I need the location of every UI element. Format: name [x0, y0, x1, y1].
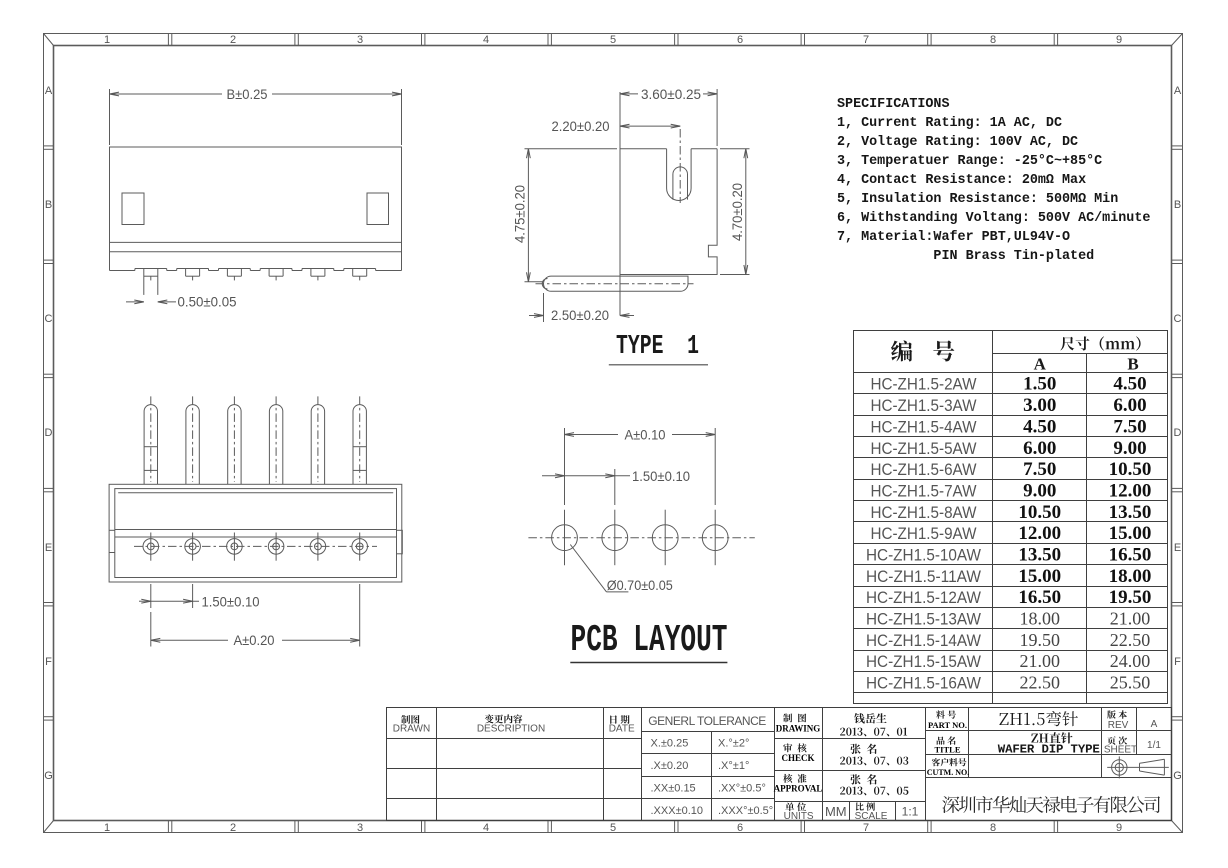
svg-text:25.50: 25.50 — [1110, 673, 1151, 693]
svg-text:GENERL TOLERANCE: GENERL TOLERANCE — [648, 714, 766, 728]
svg-text:PIN Brass Tin-plated: PIN Brass Tin-plated — [837, 249, 1094, 264]
svg-text:8: 8 — [990, 822, 996, 834]
svg-text:B: B — [1127, 355, 1138, 374]
svg-text:G: G — [1173, 770, 1182, 782]
svg-text:HC-ZH1.5-2AW: HC-ZH1.5-2AW — [871, 375, 977, 394]
svg-text:PART NO.: PART NO. — [928, 720, 967, 730]
svg-text:1: 1 — [104, 822, 110, 834]
svg-text:12.00: 12.00 — [1109, 480, 1152, 501]
svg-text:A: A — [1174, 85, 1182, 97]
svg-text:19.50: 19.50 — [1020, 630, 1061, 650]
svg-text:2.50±0.20: 2.50±0.20 — [551, 307, 609, 323]
svg-text:SCALE: SCALE — [855, 811, 888, 822]
svg-text:HC-ZH1.5-4AW: HC-ZH1.5-4AW — [871, 417, 977, 436]
svg-text:7.50: 7.50 — [1113, 416, 1146, 437]
svg-text:2: 2 — [230, 822, 236, 834]
svg-text:PCB LAYOUT: PCB LAYOUT — [571, 619, 728, 662]
svg-text:2: 2 — [230, 34, 236, 46]
svg-text:B±0.25: B±0.25 — [227, 86, 268, 102]
svg-text:1.50: 1.50 — [1023, 374, 1056, 395]
svg-text:A±0.10: A±0.10 — [625, 426, 666, 442]
svg-text:3.60±0.25: 3.60±0.25 — [641, 86, 701, 102]
svg-text:10.50: 10.50 — [1109, 459, 1152, 480]
svg-text:Ø0.70±0.05: Ø0.70±0.05 — [607, 577, 673, 593]
svg-text:9: 9 — [1116, 822, 1122, 834]
svg-text:4: 4 — [483, 34, 489, 46]
svg-text:15.00: 15.00 — [1018, 566, 1061, 587]
svg-text:7: 7 — [863, 34, 869, 46]
svg-text:.X±0.20: .X±0.20 — [651, 760, 689, 772]
svg-text:22.50: 22.50 — [1020, 673, 1061, 693]
svg-text:HC-ZH1.5-8AW: HC-ZH1.5-8AW — [871, 503, 977, 522]
svg-text:24.00: 24.00 — [1110, 651, 1151, 671]
svg-text:1, Current Rating: 1A AC, DC: 1, Current Rating: 1A AC, DC — [837, 116, 1062, 131]
svg-text:7.50: 7.50 — [1023, 459, 1056, 480]
svg-text:F: F — [45, 656, 52, 668]
svg-text:6, Withstanding Voltang: 500V: 6, Withstanding Voltang: 500V AC/minute — [837, 211, 1150, 226]
svg-text:HC-ZH1.5-12AW: HC-ZH1.5-12AW — [866, 588, 981, 607]
svg-text:1: 1 — [104, 34, 110, 46]
svg-text:HC-ZH1.5-15AW: HC-ZH1.5-15AW — [866, 652, 981, 671]
svg-text:18.00: 18.00 — [1109, 566, 1152, 587]
svg-text:SHEET: SHEET — [1104, 745, 1137, 756]
svg-text:4.70±0.20: 4.70±0.20 — [729, 183, 745, 241]
svg-text:9: 9 — [1116, 34, 1122, 46]
svg-text:B: B — [1174, 199, 1181, 211]
svg-text:DRAWN: DRAWN — [393, 724, 430, 735]
svg-text:4.50: 4.50 — [1023, 416, 1056, 437]
svg-text:TITLE: TITLE — [935, 745, 961, 755]
svg-text:UNITS: UNITS — [784, 811, 814, 822]
svg-text:HC-ZH1.5-16AW: HC-ZH1.5-16AW — [866, 674, 981, 693]
svg-text:1/1: 1/1 — [1147, 740, 1161, 751]
svg-text:13.50: 13.50 — [1109, 502, 1152, 523]
svg-text:6: 6 — [737, 822, 743, 834]
svg-text:C: C — [1174, 313, 1182, 325]
svg-text:A: A — [1034, 355, 1047, 374]
svg-text:7: 7 — [863, 822, 869, 834]
svg-text:7, Material:Wafer PBT,UL94V-O: 7, Material:Wafer PBT,UL94V-O — [837, 230, 1070, 245]
svg-text:9.00: 9.00 — [1113, 438, 1146, 459]
svg-text:DESCRIPTION: DESCRIPTION — [477, 724, 545, 735]
svg-text:3: 3 — [357, 34, 363, 46]
svg-text:13.50: 13.50 — [1018, 545, 1061, 566]
svg-text:SPECIFICATIONS: SPECIFICATIONS — [837, 97, 950, 112]
svg-text:3.00: 3.00 — [1023, 395, 1056, 416]
svg-text:HC-ZH1.5-14AW: HC-ZH1.5-14AW — [866, 631, 981, 650]
svg-text:TYPE 1: TYPE 1 — [616, 332, 699, 362]
svg-text:HC-ZH1.5-9AW: HC-ZH1.5-9AW — [871, 524, 977, 543]
svg-text:C: C — [45, 313, 53, 325]
svg-text:9.00: 9.00 — [1023, 480, 1056, 501]
svg-text:21.00: 21.00 — [1110, 609, 1151, 629]
svg-text:B: B — [45, 199, 52, 211]
svg-text:21.00: 21.00 — [1020, 651, 1061, 671]
svg-text:0.50±0.05: 0.50±0.05 — [178, 293, 237, 309]
svg-text:X.°±2°: X.°±2° — [718, 738, 749, 750]
svg-text:16.50: 16.50 — [1018, 587, 1061, 608]
svg-text:8: 8 — [990, 34, 996, 46]
svg-text:2, Voltage Rating: 100V AC, DC: 2, Voltage Rating: 100V AC, DC — [837, 135, 1078, 150]
svg-text:12.00: 12.00 — [1018, 523, 1061, 544]
svg-text:HC-ZH1.5-5AW: HC-ZH1.5-5AW — [871, 439, 977, 458]
svg-text:6.00: 6.00 — [1023, 438, 1056, 459]
svg-text:6: 6 — [737, 34, 743, 46]
svg-text:G: G — [44, 770, 53, 782]
svg-text:5: 5 — [610, 822, 616, 834]
svg-text:3, Temperatuer Range: -25°C~+8: 3, Temperatuer Range: -25°C~+85°C — [837, 154, 1102, 169]
svg-text:15.00: 15.00 — [1109, 523, 1152, 544]
svg-text:18.00: 18.00 — [1020, 609, 1061, 629]
svg-text:10.50: 10.50 — [1018, 502, 1061, 523]
svg-text:MM: MM — [825, 804, 847, 819]
svg-text:4.50: 4.50 — [1113, 374, 1146, 395]
svg-text:CUTM. NO.: CUTM. NO. — [927, 768, 969, 777]
svg-text:WAFER DIP TYPE: WAFER DIP TYPE — [998, 743, 1100, 757]
svg-text:2.20±0.20: 2.20±0.20 — [552, 118, 610, 134]
svg-text:CHECK: CHECK — [781, 753, 814, 763]
svg-text:3: 3 — [357, 822, 363, 834]
svg-text:F: F — [1174, 656, 1181, 668]
svg-text:REV: REV — [1108, 720, 1129, 731]
svg-text:HC-ZH1.5-3AW: HC-ZH1.5-3AW — [871, 396, 977, 415]
svg-text:1.50±0.10: 1.50±0.10 — [632, 468, 690, 484]
svg-text:A: A — [1151, 719, 1158, 730]
svg-text:16.50: 16.50 — [1109, 545, 1152, 566]
svg-text:HC-ZH1.5-7AW: HC-ZH1.5-7AW — [871, 481, 977, 500]
svg-text:4, Contact Resistance: 20mΩ Ma: 4, Contact Resistance: 20mΩ Max — [837, 173, 1086, 188]
svg-text:6.00: 6.00 — [1113, 395, 1146, 416]
svg-text:.XXX±0.10: .XXX±0.10 — [651, 805, 704, 817]
svg-text:5, Insulation Resistance: 500M: 5, Insulation Resistance: 500MΩ Min — [837, 192, 1118, 207]
svg-text:1:1: 1:1 — [902, 805, 919, 819]
svg-text:DRAWING: DRAWING — [776, 724, 821, 734]
svg-text:DATE: DATE — [609, 724, 635, 735]
svg-text:5: 5 — [610, 34, 616, 46]
svg-text:APPROVAL: APPROVAL — [774, 783, 823, 793]
svg-text:.XX±0.15: .XX±0.15 — [651, 783, 696, 795]
svg-text:E: E — [1174, 542, 1181, 554]
svg-text:4.75±0.20: 4.75±0.20 — [512, 185, 528, 243]
svg-text:1.50±0.10: 1.50±0.10 — [202, 594, 260, 610]
svg-text:D: D — [1174, 427, 1182, 439]
svg-text:19.50: 19.50 — [1109, 587, 1152, 608]
svg-text:HC-ZH1.5-11AW: HC-ZH1.5-11AW — [866, 567, 981, 586]
svg-text:.XX°±0.5°: .XX°±0.5° — [718, 783, 766, 795]
svg-text:HC-ZH1.5-13AW: HC-ZH1.5-13AW — [866, 610, 981, 629]
svg-text:X.±0.25: X.±0.25 — [651, 738, 689, 750]
svg-text:A: A — [45, 85, 53, 97]
svg-text:E: E — [45, 542, 52, 554]
svg-text:D: D — [45, 427, 53, 439]
svg-text:22.50: 22.50 — [1110, 630, 1151, 650]
svg-text:HC-ZH1.5-10AW: HC-ZH1.5-10AW — [866, 546, 981, 565]
svg-text:A±0.20: A±0.20 — [234, 632, 275, 648]
svg-text:.X°±1°: .X°±1° — [718, 760, 749, 772]
svg-text:.XXX°±0.5°: .XXX°±0.5° — [718, 805, 773, 817]
svg-text:4: 4 — [483, 822, 489, 834]
svg-text:HC-ZH1.5-6AW: HC-ZH1.5-6AW — [871, 460, 977, 479]
